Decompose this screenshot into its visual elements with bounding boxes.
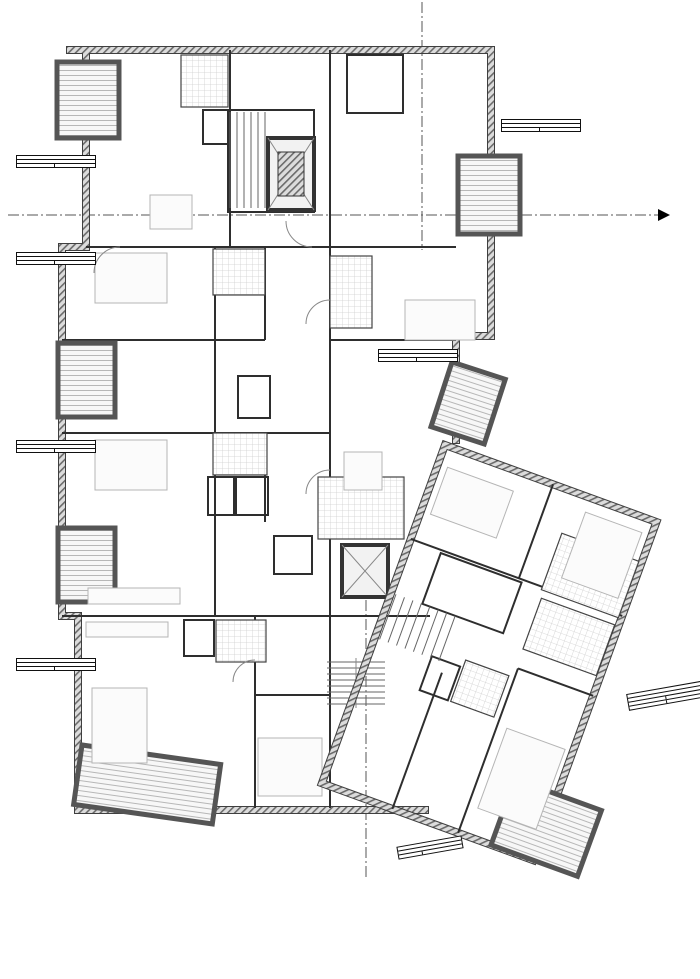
area-label (502, 128, 540, 131)
area-label (17, 164, 55, 167)
furniture (86, 195, 475, 796)
floor-plan-drawing (0, 0, 700, 979)
elevator-car-icon (278, 152, 304, 196)
apartment-area-row (379, 358, 457, 361)
apartment-area-row (17, 164, 95, 167)
apartment-area-row (502, 128, 580, 131)
area-label (379, 358, 417, 361)
apartment-info-w8 (16, 155, 96, 168)
area-value (55, 449, 95, 452)
apartment-info-w11 (16, 658, 96, 671)
area-value (540, 128, 580, 131)
apartment-info-w10 (16, 440, 96, 453)
apartment-area-row (17, 449, 95, 452)
stairwell (230, 112, 314, 210)
area-label (17, 261, 55, 264)
apartment-info-w14 (501, 119, 581, 132)
section-arrow-icon (658, 209, 670, 221)
area-value (55, 667, 95, 670)
apartment-info-w13 (378, 349, 458, 362)
area-value (55, 164, 95, 167)
area-value (55, 261, 95, 264)
area-label (17, 667, 55, 670)
apartment-area-row (17, 261, 95, 264)
shaft-2 (342, 545, 388, 597)
area-value (417, 358, 457, 361)
area-label (17, 449, 55, 452)
apartment-info-w9 (16, 252, 96, 265)
floor-plan (0, 0, 700, 979)
apartment-area-row (17, 667, 95, 670)
